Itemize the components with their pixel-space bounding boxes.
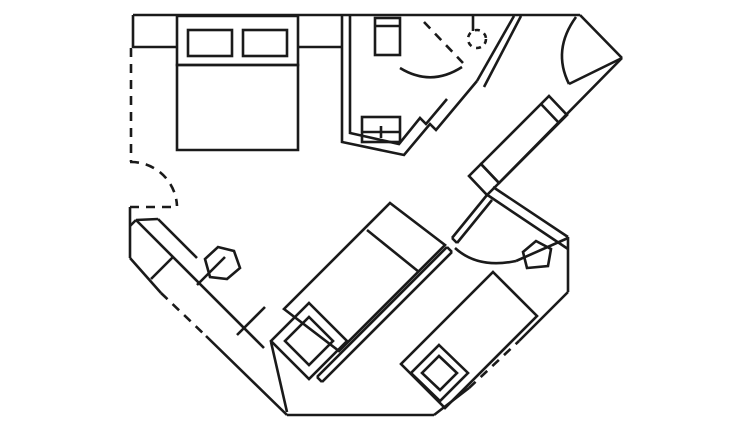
sofa-divider [367, 230, 419, 272]
room2-west-wall-outer [452, 195, 487, 238]
wardrobe-divider [541, 104, 559, 123]
lower-right-wall-b [519, 292, 568, 341]
lower-right-window-dashed [469, 341, 519, 388]
headboard-shelf [177, 16, 298, 65]
desk-divider-3 [237, 307, 265, 335]
corridor-wall-outer [477, 16, 514, 81]
desk-divider-2 [197, 257, 225, 285]
room2-door-arc [455, 248, 516, 263]
shower-divider-dashed [424, 22, 463, 63]
sofa-ledge-cap-bottom [317, 377, 322, 382]
room2-north-wall-inner [486, 194, 568, 249]
corridor-wall-inner [484, 16, 521, 87]
wardrobe [481, 96, 567, 183]
floor-plan-canvas [0, 0, 754, 435]
side-table-right-inner [422, 356, 457, 390]
pillow-right [243, 30, 287, 56]
desk-chair [205, 247, 240, 279]
left-connecting-door-arc-dashed [130, 162, 177, 206]
double-bed [177, 65, 298, 150]
desk-inner-line [158, 219, 197, 258]
wall-connector-post [469, 164, 499, 195]
entry-door-leaf [569, 58, 622, 84]
toilet [375, 18, 400, 55]
entry-door-arc [562, 17, 576, 84]
corner-basin [523, 241, 551, 268]
room2-west-wall-cap [452, 238, 457, 243]
pillow-left [188, 30, 232, 56]
desk-top-cap [136, 219, 158, 220]
bathroom-door-arc [400, 67, 462, 77]
lower-left-window-dashed [161, 293, 206, 336]
lower-left-wall-a [130, 258, 161, 293]
entry-corner-wall [580, 15, 622, 58]
sofa-ledge-cap-top [447, 247, 452, 252]
floor-plan-page [0, 0, 754, 435]
room2-west-wall-inner [457, 200, 492, 243]
room2-north-wall-outer [493, 187, 568, 237]
lower-left-wall-b [206, 336, 287, 415]
desk-divider-1 [151, 257, 173, 279]
shower-head-circle-dashed [468, 30, 486, 48]
